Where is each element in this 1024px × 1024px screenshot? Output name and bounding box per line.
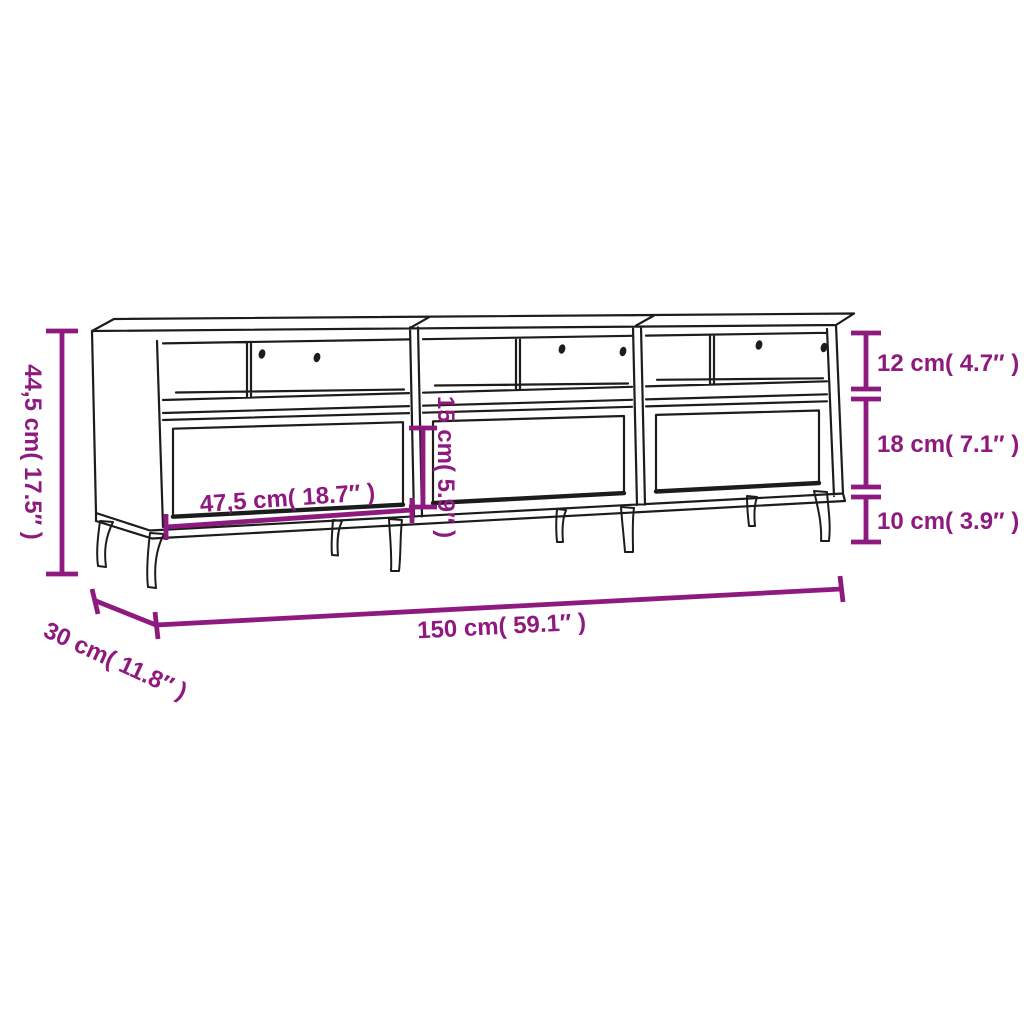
cable-hole [558, 344, 567, 355]
cable-holes [258, 340, 829, 363]
tv-stand-dimension-diagram: 44,5 cm( 17.5″ ) 12 cm( 4.7″ ) 18 cm( 7.… [0, 0, 1024, 1024]
tv-stand-line-drawing [92, 314, 854, 589]
cable-hole [313, 352, 322, 363]
overall-width-label: 150 cm( 59.1″ ) [417, 609, 587, 645]
drawer-section-height-label: 18 cm( 7.1″ ) [877, 431, 1019, 458]
drawer-front-height-label: 15 cm( 5.9″ ) [432, 396, 459, 538]
cable-hole [619, 346, 628, 357]
top-compartment-height-label: 12 cm( 4.7″ ) [877, 350, 1019, 377]
diagram-canvas: 44,5 cm( 17.5″ ) 12 cm( 4.7″ ) 18 cm( 7.… [0, 0, 1024, 1024]
cable-hole [258, 349, 267, 360]
leg-height-label: 10 cm( 3.9″ ) [877, 508, 1019, 535]
depth-label: 30 cm( 11.8″ ) [40, 617, 192, 706]
cable-hole [755, 340, 764, 351]
overall-height-label: 44,5 cm( 17.5″ ) [19, 364, 46, 540]
